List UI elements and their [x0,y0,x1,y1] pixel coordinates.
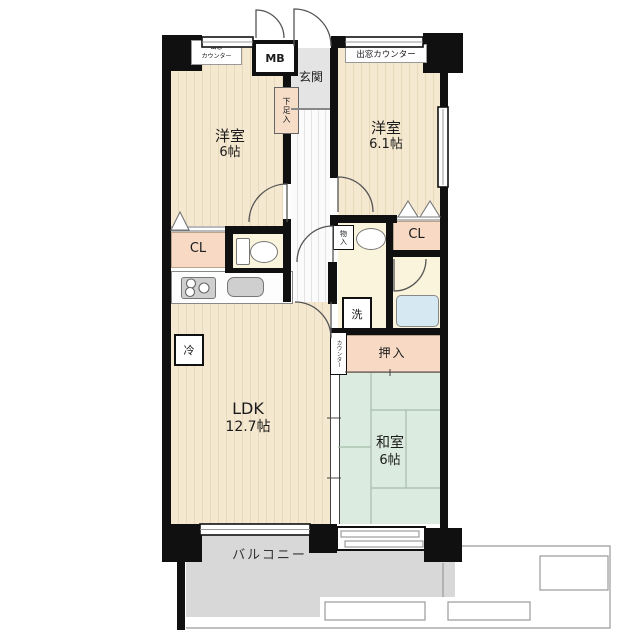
door-arc-western2 [338,177,373,212]
folding-doors [171,201,440,231]
floorplan: MB 出窓 カウンター 出窓カウンター 下足入 物入 洗 冷 カウンター 洋室 … [0,0,640,640]
door-arc-bathroom [394,259,426,291]
sliding-door-ticks [327,369,440,478]
windows [200,37,448,550]
door-arc-entrance [294,9,331,46]
door-arc-western1 [249,184,287,222]
folding-door-closet-right-1 [398,201,418,217]
tatami-joints [338,373,440,524]
door-arc-meter-box [256,10,284,38]
folding-door-closet-right-2 [420,201,440,217]
folding-door-closet-left [171,212,189,230]
stove-burners [186,279,210,297]
floorplan-symbols [0,0,640,640]
neighbor-balcony-outline [186,546,610,628]
door-arc-washroom [297,226,333,262]
door-arc-ldk [295,302,331,338]
